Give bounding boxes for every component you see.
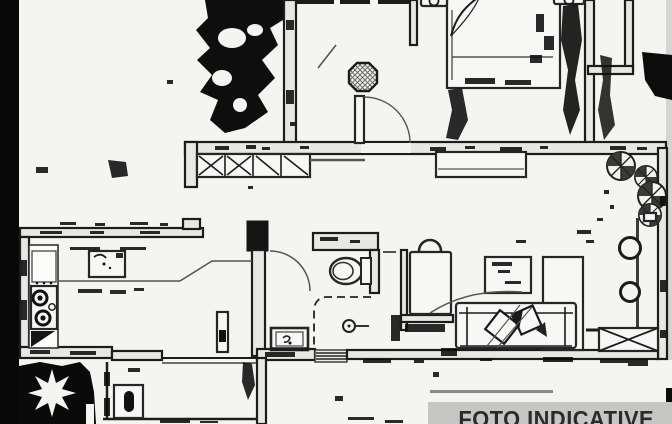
double-bed — [447, 0, 560, 88]
scan-blob-star — [19, 362, 96, 424]
hallway — [349, 63, 410, 143]
door-leaf — [355, 96, 364, 143]
bedroom — [421, 0, 584, 88]
floorplan-scan: FOTO INDICATIVE — [0, 0, 672, 424]
door-swing-arc — [364, 97, 410, 143]
bathroom-door-arc — [270, 251, 310, 291]
entry-pillar — [247, 221, 268, 251]
bathroom-sink — [271, 328, 308, 350]
living-room — [391, 213, 658, 356]
laundry-room — [103, 358, 266, 424]
floorplan-drawing — [0, 0, 672, 424]
ceiling-light — [349, 63, 377, 91]
kitchen — [21, 245, 252, 352]
window-planter — [436, 152, 526, 177]
nightstand-right — [554, 0, 584, 4]
bathroom — [270, 251, 371, 350]
wardrobe — [197, 154, 365, 177]
stool — [621, 283, 640, 302]
star-shape — [28, 369, 76, 417]
photo-indicative-banner: FOTO INDICATIVE — [428, 402, 672, 424]
banner-label: FOTO INDICATIVE — [428, 406, 654, 424]
toilet — [330, 258, 371, 284]
stool — [620, 238, 641, 259]
